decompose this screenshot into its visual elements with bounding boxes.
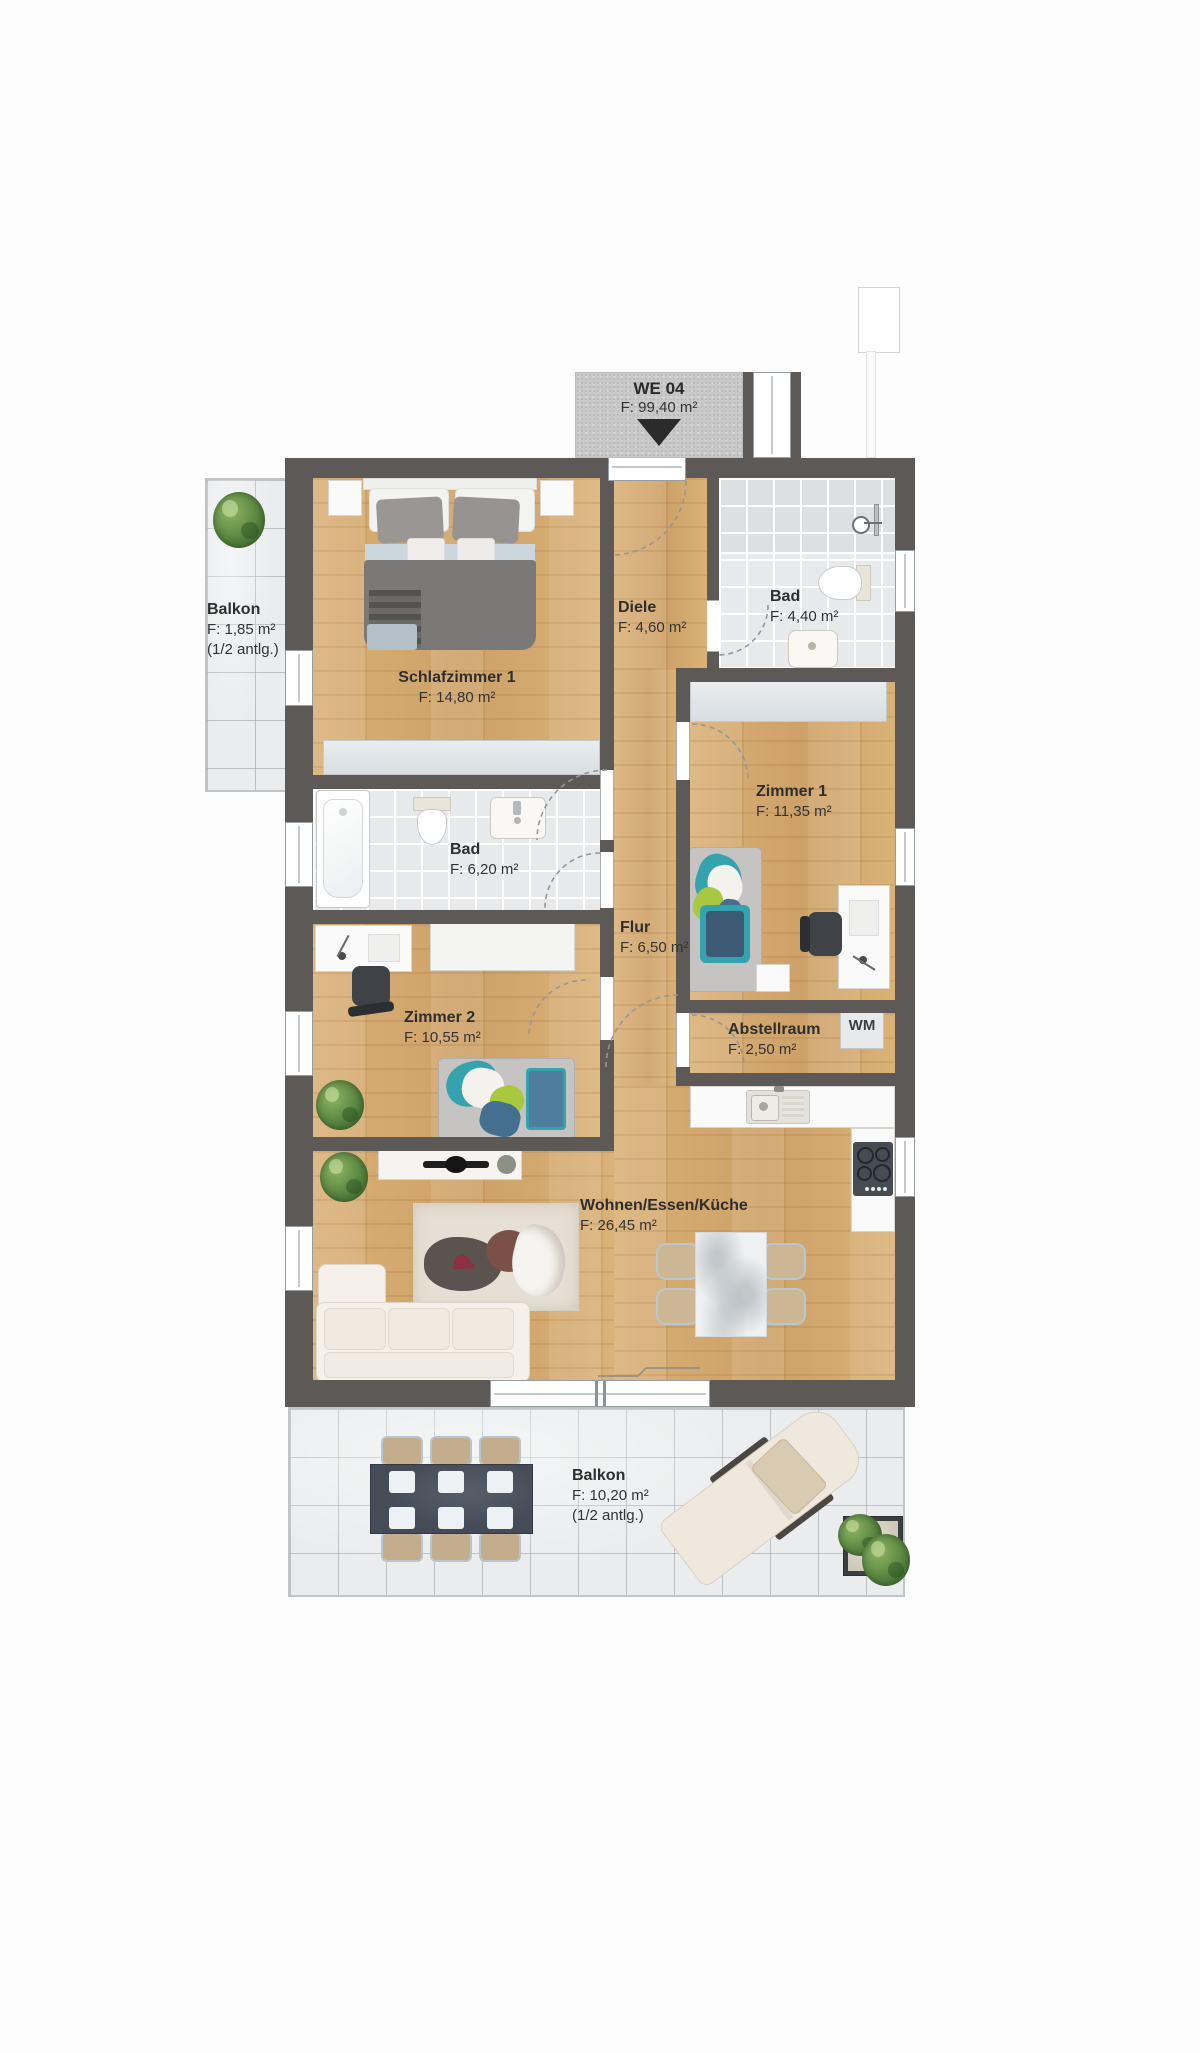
wall-segment — [285, 458, 608, 478]
outdoor-dining-table — [370, 1464, 533, 1534]
window — [895, 550, 915, 612]
wall-segment — [676, 780, 690, 1013]
unit-id: WE 04 — [576, 379, 742, 399]
wall-segment — [690, 668, 895, 682]
plant-icon — [320, 1152, 368, 1202]
outdoor-chair — [381, 1532, 423, 1562]
room-label-flur: Flur F: 6,50 m² — [620, 918, 688, 958]
outdoor-chair — [430, 1436, 472, 1466]
unit-info-box: WE 04 F: 99,40 m² — [575, 372, 743, 458]
wall-segment — [707, 478, 719, 600]
wall-segment — [895, 478, 915, 550]
wall-segment — [895, 886, 915, 1137]
wall-segment — [285, 1380, 490, 1407]
plant-icon — [862, 1534, 910, 1586]
bedside-table — [756, 964, 790, 992]
dining-chair — [762, 1288, 806, 1325]
wall-segment — [676, 668, 690, 722]
door-opening — [600, 977, 614, 1040]
desk — [315, 925, 412, 972]
room-label-bad-klein: Bad F: 4,40 m² — [770, 587, 838, 627]
wall-segment — [285, 1076, 313, 1226]
bathroom-sink — [788, 630, 836, 666]
desk-chair — [800, 908, 842, 960]
wall-segment — [313, 775, 600, 789]
bathtub — [316, 790, 370, 908]
wall-segment — [313, 1137, 600, 1151]
window — [895, 828, 915, 886]
wall-segment — [600, 840, 614, 852]
desk-chair — [346, 966, 396, 1016]
door-opening — [600, 770, 614, 840]
nightstand — [540, 480, 574, 516]
outdoor-chair — [479, 1532, 521, 1562]
wardrobe — [690, 680, 887, 722]
dining-chair — [656, 1288, 700, 1325]
room-label-balkon-bottom: Balkon F: 10,20 m² (1/2 antlg.) — [572, 1466, 649, 1526]
neighbour-window — [858, 287, 900, 353]
door-opening — [707, 600, 719, 652]
plant-icon — [316, 1080, 364, 1130]
door-opening — [600, 852, 614, 908]
door-opening — [676, 722, 690, 780]
wall-segment — [313, 910, 600, 924]
dining-table — [695, 1232, 767, 1337]
entrance-marker-icon — [637, 419, 681, 446]
floorplan-canvas: WM — [0, 0, 1200, 2053]
outdoor-chair — [430, 1532, 472, 1562]
wall-segment — [285, 706, 313, 822]
outdoor-chair — [381, 1436, 423, 1466]
shower-head-icon — [852, 504, 888, 534]
outdoor-chair — [479, 1436, 521, 1466]
room-label-balkon-top: Balkon F: 1,85 m² (1/2 antlg.) — [207, 600, 279, 660]
kitchen-sink — [746, 1090, 810, 1124]
wall-segment — [895, 1197, 915, 1407]
nightstand — [328, 480, 362, 516]
window — [895, 1137, 915, 1197]
wall-segment — [285, 478, 313, 650]
room-label-zimmer2: Zimmer 2 F: 10,55 m² — [404, 1008, 481, 1048]
wall-segment — [686, 458, 915, 478]
plant-icon — [213, 492, 265, 548]
desk — [838, 885, 890, 989]
room-label-bad-gross: Bad F: 6,20 m² — [450, 840, 518, 880]
dining-chair — [762, 1243, 806, 1280]
wall-segment — [285, 887, 313, 1011]
room-label-abstellraum: Abstellraum F: 2,50 m² — [728, 1020, 820, 1060]
wall-segment — [690, 1000, 895, 1013]
room-label-wohnen: Wohnen/Essen/Küche F: 26,45 m² — [580, 1196, 748, 1236]
floor-flur — [614, 668, 676, 1086]
window — [285, 1226, 313, 1291]
single-bed — [438, 1058, 575, 1140]
wall-segment — [791, 372, 801, 458]
sideboard — [378, 1148, 522, 1180]
wall-segment — [710, 1380, 915, 1407]
wardrobe — [430, 923, 575, 971]
window — [285, 1011, 313, 1076]
wall-segment — [676, 1067, 690, 1086]
double-bed — [363, 478, 537, 650]
single-bed — [688, 847, 762, 992]
wall-segment — [600, 1040, 614, 1151]
dining-chair — [656, 1243, 700, 1280]
toilet — [411, 797, 451, 845]
stove — [853, 1142, 893, 1196]
door-opening — [676, 1013, 690, 1067]
window-band — [490, 1380, 710, 1407]
unit-area: F: 99,40 m² — [576, 399, 742, 416]
room-label-zimmer1: Zimmer 1 F: 11,35 m² — [756, 782, 832, 822]
room-label-diele: Diele F: 4,60 m² — [618, 598, 686, 638]
wall-segment — [743, 372, 753, 458]
wall-segment — [600, 908, 614, 977]
room-label-schlafzimmer1: Schlafzimmer 1 F: 14,80 m² — [398, 668, 515, 708]
wall-segment — [600, 478, 614, 770]
wall-segment — [707, 652, 719, 668]
window — [753, 372, 791, 458]
neighbour-wall-line — [866, 351, 876, 458]
floor-diele — [614, 478, 707, 668]
bathroom-sink — [490, 797, 544, 837]
balcony-door — [285, 650, 313, 706]
wall-segment — [690, 1073, 895, 1086]
window — [285, 822, 313, 887]
wall-segment — [895, 612, 915, 828]
wardrobe — [323, 740, 600, 775]
sofa — [316, 1262, 530, 1382]
